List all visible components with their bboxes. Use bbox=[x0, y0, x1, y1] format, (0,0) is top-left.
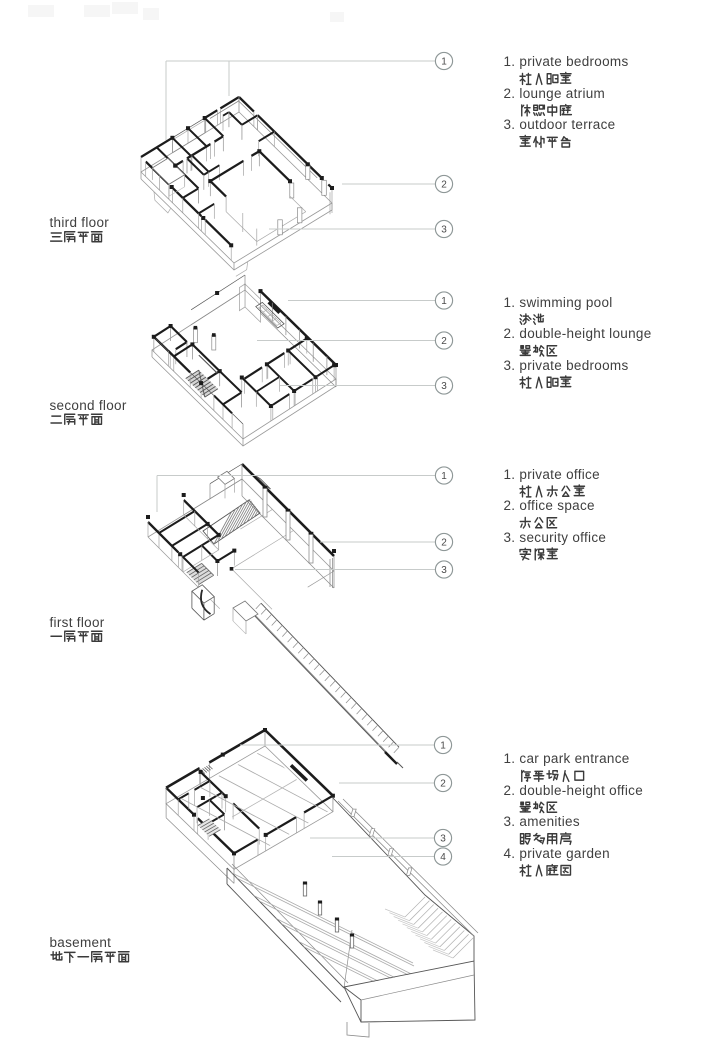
svg-text:1: 1 bbox=[441, 296, 447, 307]
svg-text:2: 2 bbox=[441, 538, 447, 549]
svg-text:2: 2 bbox=[441, 336, 447, 347]
svg-text:2: 2 bbox=[441, 180, 447, 191]
svg-text:3: 3 bbox=[441, 381, 447, 392]
svg-text:2: 2 bbox=[440, 779, 446, 790]
svg-text:3: 3 bbox=[441, 225, 447, 236]
svg-text:1: 1 bbox=[441, 57, 447, 68]
svg-text:1: 1 bbox=[440, 741, 446, 752]
svg-text:3: 3 bbox=[440, 834, 446, 845]
svg-text:4: 4 bbox=[440, 852, 446, 863]
svg-text:3: 3 bbox=[441, 565, 447, 576]
svg-text:1: 1 bbox=[441, 471, 447, 482]
